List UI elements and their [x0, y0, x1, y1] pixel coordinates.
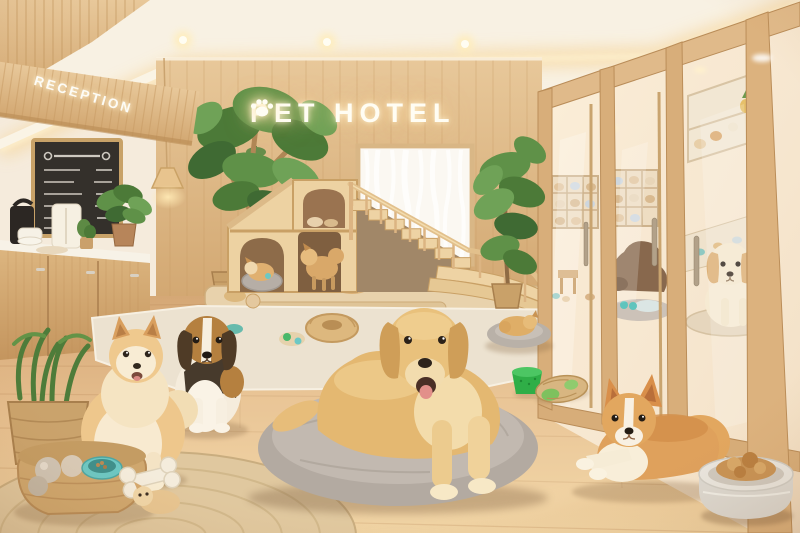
vignette-overlay	[0, 0, 800, 533]
scene-canvas	[0, 0, 800, 533]
pet-hotel-photo: PET HOTEL RECEPTION	[0, 0, 800, 533]
